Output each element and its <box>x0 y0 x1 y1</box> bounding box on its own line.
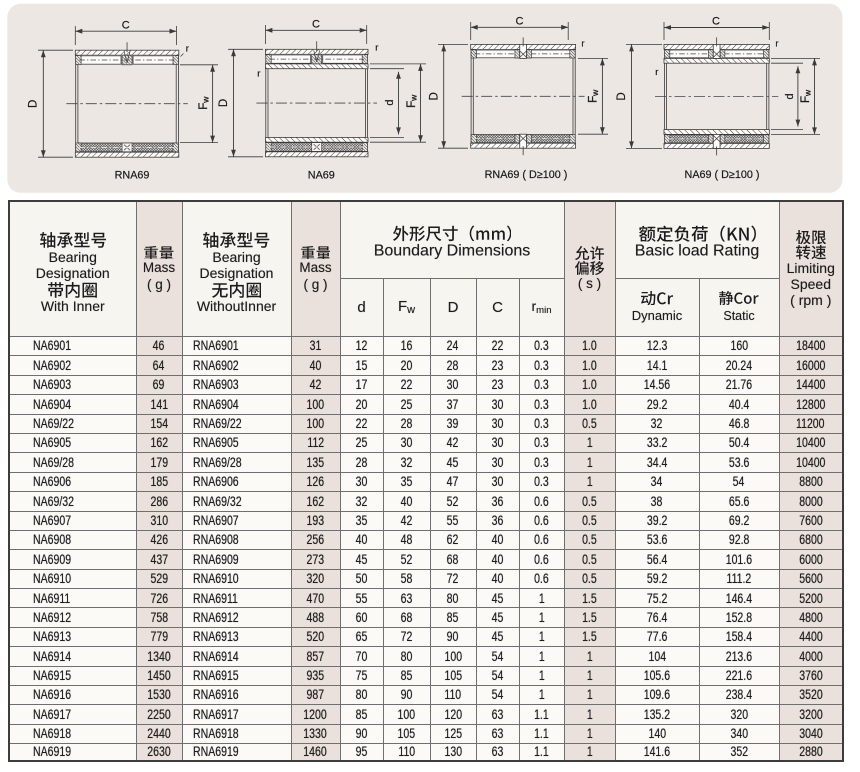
svg-text:r: r <box>581 38 584 49</box>
svg-text:r: r <box>257 69 260 80</box>
svg-text:d: d <box>784 93 796 99</box>
svg-text:C: C <box>122 19 130 31</box>
svg-text:D: D <box>616 92 628 100</box>
svg-text:r: r <box>375 43 378 54</box>
svg-text:d: d <box>384 99 396 105</box>
svg-text:D: D <box>27 100 39 108</box>
svg-text:D: D <box>428 92 440 100</box>
svg-text:RNA69: RNA69 <box>115 170 150 182</box>
svg-text:C: C <box>712 16 720 28</box>
svg-text:C: C <box>516 15 524 27</box>
svg-text:Fw: Fw <box>588 89 601 103</box>
svg-text:NA69: NA69 <box>308 170 335 182</box>
svg-text:r: r <box>186 44 189 55</box>
svg-text:Fw: Fw <box>198 96 211 110</box>
svg-text:Fw: Fw <box>800 89 813 103</box>
svg-text:RNA69 ( D≥100 ): RNA69 ( D≥100 ) <box>485 169 568 181</box>
svg-text:Fw: Fw <box>406 94 419 108</box>
svg-text:r: r <box>775 39 778 50</box>
svg-text:NA69 ( D≥100 ): NA69 ( D≥100 ) <box>685 169 760 181</box>
svg-text:D: D <box>218 99 230 107</box>
svg-text:r: r <box>655 67 658 78</box>
svg-text:C: C <box>312 18 320 30</box>
